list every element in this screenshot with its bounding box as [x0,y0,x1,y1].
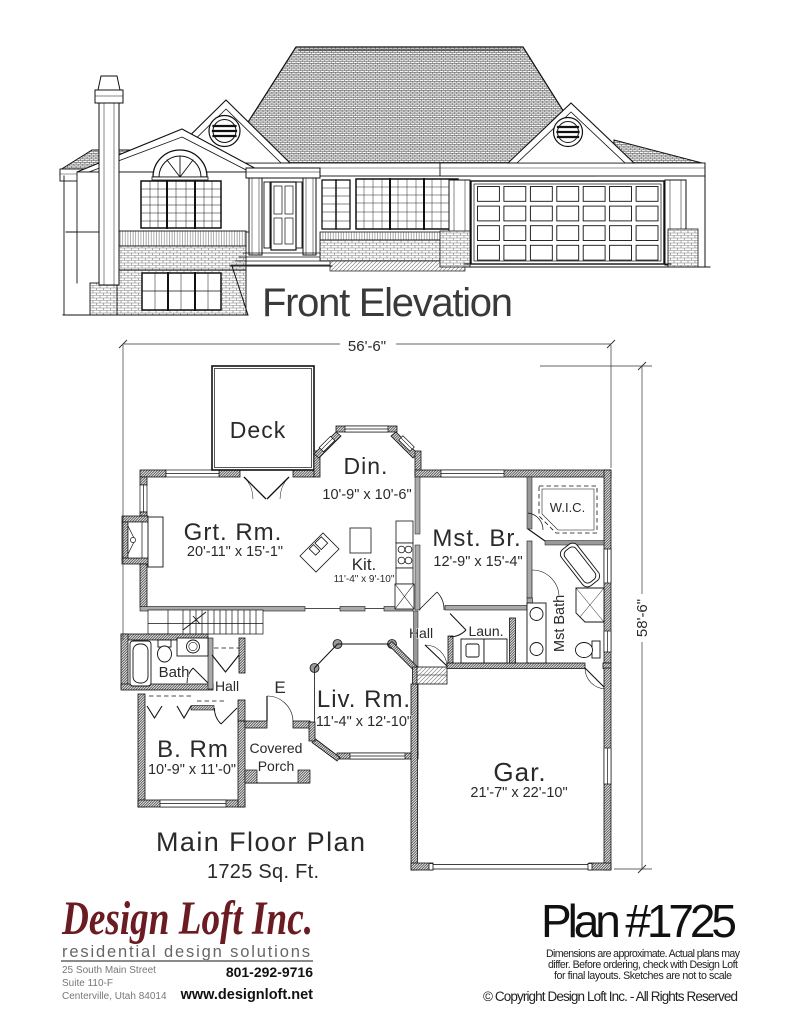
svg-text:Grt. Rm.: Grt. Rm. [184,519,283,546]
svg-text:for final layouts. Sketches a: for final layouts. Sketches are not to s… [554,970,732,982]
svg-text:Covered: Covered [250,740,303,756]
svg-text:Plan #1725: Plan #1725 [541,895,737,947]
svg-text:25 South Main Street: 25 South Main Street [62,965,156,976]
svg-text:Din.: Din. [344,453,389,479]
svg-text:W.I.C.: W.I.C. [550,500,585,515]
svg-text:12'-9" x 15'-4": 12'-9" x 15'-4" [433,554,522,570]
svg-text:Front Elevation: Front Elevation [262,281,514,325]
svg-text:www.designloft.net: www.designloft.net [180,987,314,1003]
svg-text:E: E [274,678,285,697]
svg-text:B. Rm: B. Rm [157,736,229,763]
svg-text:Deck: Deck [230,417,286,443]
svg-text:21'-7" x 22'-10": 21'-7" x 22'-10" [470,785,567,801]
svg-text:11'-4" x 12'-10": 11'-4" x 12'-10" [316,714,412,730]
svg-text:residential design solutions: residential design solutions [62,943,310,961]
svg-text:Gar.: Gar. [493,757,546,787]
svg-text:Mst. Br.: Mst. Br. [432,525,521,552]
svg-text:10'-9" x 10'-6": 10'-9" x 10'-6" [322,487,411,503]
svg-text:10'-9" x 11'-0": 10'-9" x 11'-0" [148,762,236,778]
svg-text:801-292-9716: 801-292-9716 [226,964,313,980]
svg-text:Centerville, Utah 84014: Centerville, Utah 84014 [62,991,167,1002]
svg-text:Porch: Porch [258,758,295,774]
svg-text:58'-6": 58'-6" [634,599,651,637]
svg-text:Hall: Hall [409,625,433,641]
svg-text:Mst Bath: Mst Bath [552,595,568,652]
svg-text:56'-6": 56'-6" [348,338,386,355]
svg-text:11'-4" x 9'-10": 11'-4" x 9'-10" [334,574,395,585]
svg-text:1725 Sq. Ft.: 1725 Sq. Ft. [207,861,321,883]
svg-text:Liv. Rm.: Liv. Rm. [317,686,411,713]
svg-text:Hall: Hall [215,678,239,694]
svg-text:20'-11" x 15'-1": 20'-11" x 15'-1" [187,544,283,560]
svg-text:Kit.: Kit. [352,555,377,574]
svg-text:Laun.: Laun. [468,623,503,639]
svg-text:© Copyright Design Loft Inc. -: © Copyright Design Loft Inc. - All Right… [483,989,738,1004]
svg-text:Design Loft Inc.: Design Loft Inc. [61,892,313,945]
svg-text:Main Floor Plan: Main Floor Plan [156,827,369,857]
svg-text:Suite 110-F: Suite 110-F [62,978,113,989]
svg-text:Bath: Bath [159,664,190,681]
